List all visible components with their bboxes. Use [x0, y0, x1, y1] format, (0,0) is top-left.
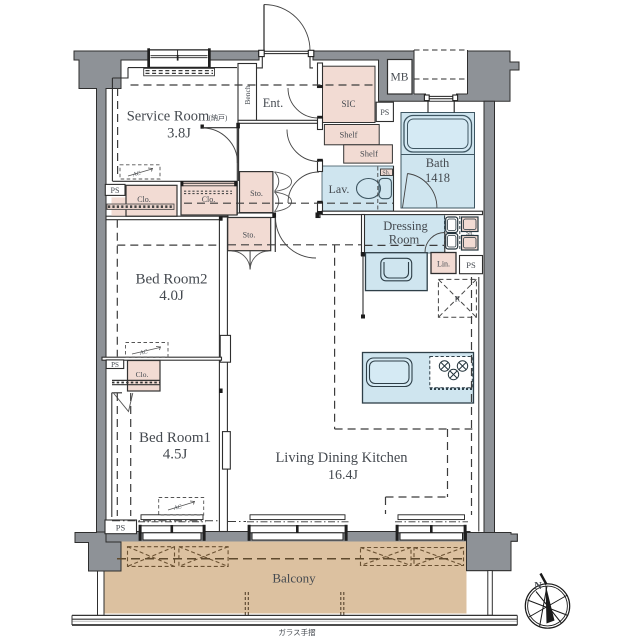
svg-text:PS: PS	[116, 523, 126, 533]
svg-text:Bed Room1: Bed Room1	[139, 430, 211, 446]
svg-text:Service Room: Service Room	[127, 109, 210, 125]
svg-text:3.8J: 3.8J	[167, 126, 191, 142]
svg-text:Dressing: Dressing	[383, 219, 428, 233]
svg-text:Sto.: Sto.	[250, 189, 263, 198]
svg-text:PS: PS	[111, 361, 119, 369]
svg-text:Living Dining Kitchen: Living Dining Kitchen	[275, 450, 408, 466]
svg-text:N: N	[534, 581, 542, 592]
svg-text:R: R	[455, 294, 461, 304]
svg-text:Shelf: Shelf	[340, 130, 358, 140]
svg-text:PS: PS	[111, 186, 120, 195]
svg-text:Bed Room2: Bed Room2	[135, 272, 207, 288]
svg-text:Room: Room	[389, 233, 420, 247]
svg-text:MB: MB	[391, 72, 409, 84]
svg-text:Balcony: Balcony	[272, 571, 316, 586]
svg-text:PS: PS	[466, 260, 476, 270]
svg-text:1418: 1418	[425, 171, 450, 185]
svg-text:4.5J: 4.5J	[163, 447, 188, 463]
svg-text:Ent.: Ent.	[263, 96, 283, 110]
svg-text:SIC: SIC	[341, 99, 355, 109]
svg-text:4.0J: 4.0J	[159, 288, 184, 304]
svg-text:Lav.: Lav.	[329, 182, 350, 196]
svg-text:Shelf: Shelf	[360, 149, 378, 159]
svg-text:Sto.: Sto.	[243, 231, 256, 240]
svg-text:Clo.: Clo.	[136, 370, 149, 379]
svg-text:PS: PS	[380, 108, 389, 117]
svg-text:Lin.: Lin.	[437, 260, 450, 269]
svg-text:Bench: Bench	[243, 85, 252, 104]
svg-text:Sh.: Sh.	[382, 171, 390, 177]
svg-text:Bath: Bath	[426, 156, 450, 170]
svg-text:ガラス手摺: ガラス手摺	[278, 627, 315, 637]
svg-text:Clo.: Clo.	[202, 195, 216, 204]
svg-text:16.4J: 16.4J	[328, 468, 359, 483]
svg-text:Sh.: Sh.	[466, 231, 474, 237]
svg-text:(納戸): (納戸)	[209, 113, 228, 122]
svg-text:Clo.: Clo.	[137, 195, 151, 204]
